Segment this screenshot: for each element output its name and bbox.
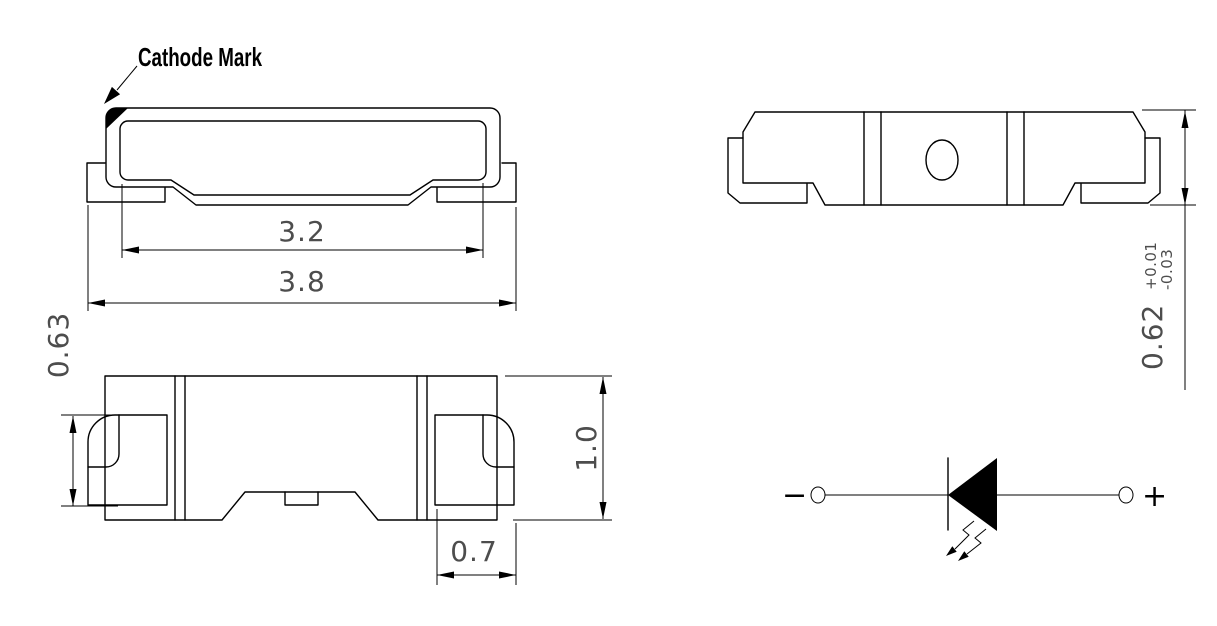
technical-drawing-page: Cathode Mark 3.2 3.8 [0, 0, 1217, 626]
led-schematic: − + [782, 458, 1167, 561]
positive-terminal-circle [1119, 487, 1133, 503]
dim-arrowhead-bottom [1182, 188, 1189, 205]
light-arrowhead [946, 546, 957, 556]
light-arrowhead [958, 551, 969, 561]
left-j-lead [88, 415, 167, 505]
dimension-body-height: 1.0 [505, 376, 612, 520]
dim-arrowhead-top [70, 416, 77, 433]
dim-arrowhead-right [499, 300, 516, 307]
side-view: 0.63 1.0 0.7 [42, 312, 612, 585]
dim-arrowhead-right [499, 572, 516, 579]
dim-arrowhead-bottom [70, 489, 77, 506]
body-outline [743, 112, 1145, 205]
inner-contour [120, 121, 486, 195]
dimension-inner-width: 3.2 [122, 183, 483, 258]
right-j-lead [1081, 138, 1160, 203]
dim-arrowhead-left [88, 300, 105, 307]
dim-arrowhead-left [122, 247, 139, 254]
callout-leader-line [117, 66, 137, 90]
left-j-lead [728, 138, 807, 203]
dim-value: 1.0 [570, 424, 603, 472]
left-j-lead-slot [88, 415, 119, 467]
dim-arrowhead-top [1182, 111, 1189, 128]
negative-terminal-circle [811, 487, 825, 503]
top-view: Cathode Mark 3.2 3.8 [87, 42, 516, 311]
dim-value: 0.63 [42, 312, 75, 378]
light-arrow-zigzag [955, 521, 974, 549]
dimension-lead-height: 0.63 [42, 312, 118, 506]
dim-value: 0.62 [1136, 304, 1169, 370]
dim-tolerance-minus: -0.03 [1158, 249, 1176, 290]
center-hole [926, 140, 958, 180]
diode-triangle [948, 458, 997, 531]
dim-value: 3.2 [278, 215, 326, 248]
back-view: 0.62 +0.01 -0.03 [728, 110, 1196, 390]
light-emission-arrows [946, 521, 986, 561]
dim-arrowhead-left [437, 572, 454, 579]
light-arrow-zigzag [967, 529, 986, 554]
negative-terminal-label: − [782, 478, 807, 513]
left-terminal-tab [87, 163, 165, 202]
right-j-lead [435, 415, 514, 505]
dim-value: 0.7 [450, 535, 498, 568]
right-j-lead-slot [483, 415, 514, 467]
right-terminal-tab [437, 163, 516, 202]
cathode-mark-callout: Cathode Mark [104, 42, 262, 104]
dim-arrowhead-bottom [600, 502, 607, 519]
callout-label: Cathode Mark [138, 42, 262, 72]
bottom-notch-pad [285, 492, 318, 505]
body-outline [105, 376, 497, 520]
positive-terminal-label: + [1142, 479, 1167, 514]
dim-arrowhead-top [600, 377, 607, 394]
dim-arrowhead-right [466, 247, 483, 254]
cathode-mark [106, 108, 128, 129]
dim-value: 3.8 [278, 265, 326, 298]
